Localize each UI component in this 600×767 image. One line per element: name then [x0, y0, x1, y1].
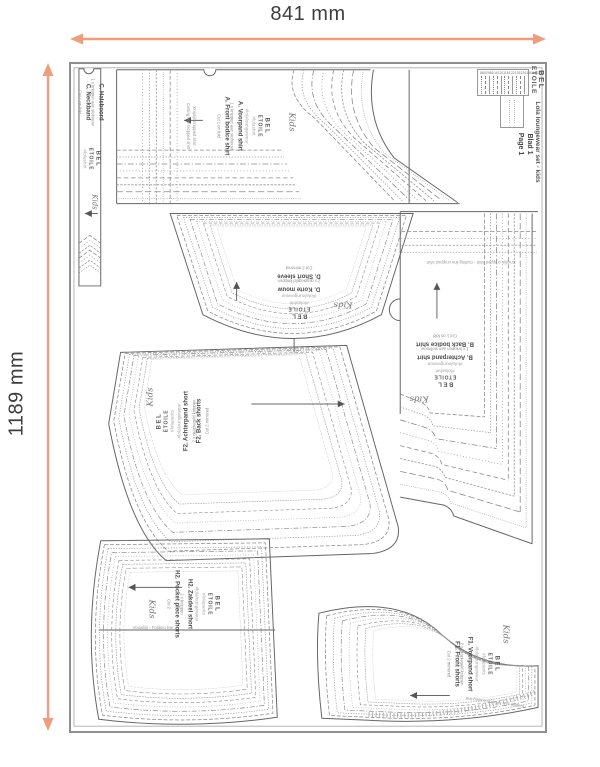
line-style-samples: [480, 75, 526, 94]
hashtag: #lolaloungewear: [193, 587, 199, 622]
kids-script-logo: Kids: [89, 194, 98, 210]
piece-a-label: BEL ETOILE #lolashirt #lolaloungewear A.…: [216, 97, 269, 156]
height-dimension-label: 1189 mm: [6, 349, 29, 439]
hashtag: #lolashirt: [80, 149, 86, 168]
hashtag: #lolaloungewear: [243, 109, 249, 144]
piece-b-label: BEL ETOILE #lolashirt #lolaloungewear B.…: [416, 333, 474, 386]
piece-f1-name-en: F1. Front shorts: [452, 641, 460, 687]
kids-script-logo: Kids: [410, 392, 429, 403]
piece-f2-outline: [109, 345, 399, 560]
piece-a-cut-en: Cut 1 on fold: [216, 114, 221, 138]
piece-d-label: BEL ETOILE #lolashirt #lolaloungewear D.…: [277, 265, 320, 318]
piece-b-cut-en: Cut 1 on fold: [433, 333, 457, 338]
brand-logo: BEL: [92, 151, 100, 168]
arrowhead-right-icon: [533, 34, 546, 45]
hashtag: #lolaloungewear: [473, 647, 479, 682]
hashtag: #lolapants: [199, 593, 205, 615]
piece-d-name-en: D. Short sleeve: [277, 271, 320, 279]
hashtag: #lolashirt: [289, 298, 308, 304]
brand-logo: ETOILE: [163, 410, 170, 433]
piece-d-cut-en: Cut 2 mirrored: [286, 265, 313, 270]
piece-b-note: Kniplijn cropped shirt - Cutting line cr…: [427, 259, 516, 265]
piece-d-cut-nl: 2 x gespiegeld knippen: [278, 279, 321, 284]
sheet-brand-logo: BEL ETOILE: [528, 66, 546, 94]
piece-f2-name-en: F2. Back shorts: [196, 399, 204, 444]
hashtag: #lolapants: [479, 653, 485, 675]
arrowhead-up-icon: [43, 63, 54, 76]
piece-a-cut-nl: 1 x knippen aan stofvouw: [230, 102, 235, 149]
arrowhead-left-icon: [70, 34, 83, 45]
piece-f2-name-nl: F2. Achterpand short: [183, 391, 191, 451]
piece-f1-cut-nl: 2 x gespiegeld knippen: [460, 643, 465, 686]
piece-c-cut-en: Cut 1 on fold: [77, 90, 82, 114]
kids-script-logo: Kids: [145, 388, 156, 407]
width-dimension-arrow: [69, 31, 547, 47]
piece-a-outline: [117, 70, 460, 204]
piece-b-name-nl: B. Achterpand shirt: [417, 352, 472, 360]
brand-logo: ETOILE: [434, 373, 457, 380]
brand-logo: ETOILE: [206, 593, 213, 616]
info-box: [500, 95, 524, 128]
hashtag: #lolaloungewear: [282, 292, 317, 298]
brand-logo: BEL: [492, 656, 500, 673]
piece-c-brand: BEL ETOILE #lolashirt: [80, 148, 101, 171]
brand-logo: BEL: [536, 70, 546, 90]
height-dimension-arrow: [40, 62, 56, 732]
kids-script-logo: Kids: [334, 298, 353, 309]
fold-line-label: Vouwlijn - Folding line: [133, 625, 174, 631]
kids-script-logo: Kids: [145, 600, 156, 619]
cutting-note-en: Cutting line cropped shirt: [185, 103, 191, 149]
hashtag: #lolashirt: [435, 366, 454, 372]
pattern-linework: [71, 64, 545, 731]
piece-c-name-nl: C. Halsboord: [95, 83, 103, 120]
cutting-note: Kniplijn cropped shirt - Cutting line cr…: [427, 259, 516, 265]
piece-f1-label: BEL ETOILE #lolapants #lolaloungewear F1…: [446, 637, 499, 692]
brand-logo: ETOILE: [288, 305, 311, 312]
cutting-note-nl: Kniplijn cropped shirt: [191, 107, 197, 146]
piece-f2-label: BEL ETOILE #lolapants #lolaloungewear F2…: [156, 391, 209, 451]
pattern-sheet: BEL ETOILE #lolashirt #lolaloungewear A.…: [69, 62, 547, 733]
arrowhead-down-icon: [43, 718, 54, 731]
piece-b-name-en: B. Back bodice shirt: [416, 339, 474, 347]
brand-logo: ETOILE: [256, 115, 263, 138]
piece-h2-cut-nl: 2 x knippen: [180, 593, 185, 614]
piece-f2-cut-en: Cut 2 mirrored: [204, 408, 209, 435]
size-line-legend: 86 92 98 104 110 116 122 128 134 140 146…: [477, 69, 529, 96]
brand-logo: ETOILE: [87, 148, 94, 171]
piece-a-name-nl: A. Voorpand shirt: [235, 101, 243, 151]
piece-d-name-nl: D. Korte mouw: [278, 284, 320, 292]
piece-f1-cut-en: Cut 2 mirrored: [446, 651, 451, 678]
piece-h2-fold-line-label: Vouwlijn - Folding line: [133, 625, 174, 631]
piece-h2-name-nl: H2. Zakdeel short: [185, 579, 193, 629]
sheet-number: Blad 1 Page 1: [516, 133, 534, 156]
sheet-number-nl: Blad 1: [525, 133, 534, 154]
brand-logo: BEL: [212, 596, 220, 613]
piece-a-name-en: A. Front bodice shirt: [222, 97, 230, 156]
piece-a-note: Kniplijn cropped shirt Cutting line crop…: [185, 103, 197, 149]
brand-logo: ETOILE: [529, 66, 537, 94]
hashtag: #lolashirt: [249, 116, 255, 135]
brand-logo: BEL: [291, 311, 308, 319]
piece-f1-name-nl: F1. Voorpand short: [465, 637, 473, 692]
kids-script-logo: Kids: [499, 625, 510, 644]
sheet-number-en: Page 1: [516, 133, 525, 156]
piece-c-cut-nl: 1 x knippen aan stofvouw: [90, 78, 95, 125]
piece-b-cut-nl: 1 x knippen aan stofvouw: [421, 347, 468, 352]
kids-script-logo: Kids: [285, 113, 296, 132]
width-dimension-label: 841 mm: [69, 3, 547, 26]
piece-h2-cut-en: Cut 2: [166, 599, 171, 609]
hashtag: #lolaloungewear: [428, 360, 463, 366]
brand-logo: ETOILE: [486, 653, 493, 676]
brand-logo: BEL: [262, 118, 270, 135]
piece-c-label: C. Halsboord 1 x knippen aan stofvouw C.…: [77, 78, 104, 125]
piece-c-name-en: C. Neckband: [82, 84, 90, 120]
piece-h2-label: BEL ETOILE #lolapants #lolaloungewear H2…: [166, 570, 219, 638]
brand-logo: BEL: [437, 379, 454, 387]
